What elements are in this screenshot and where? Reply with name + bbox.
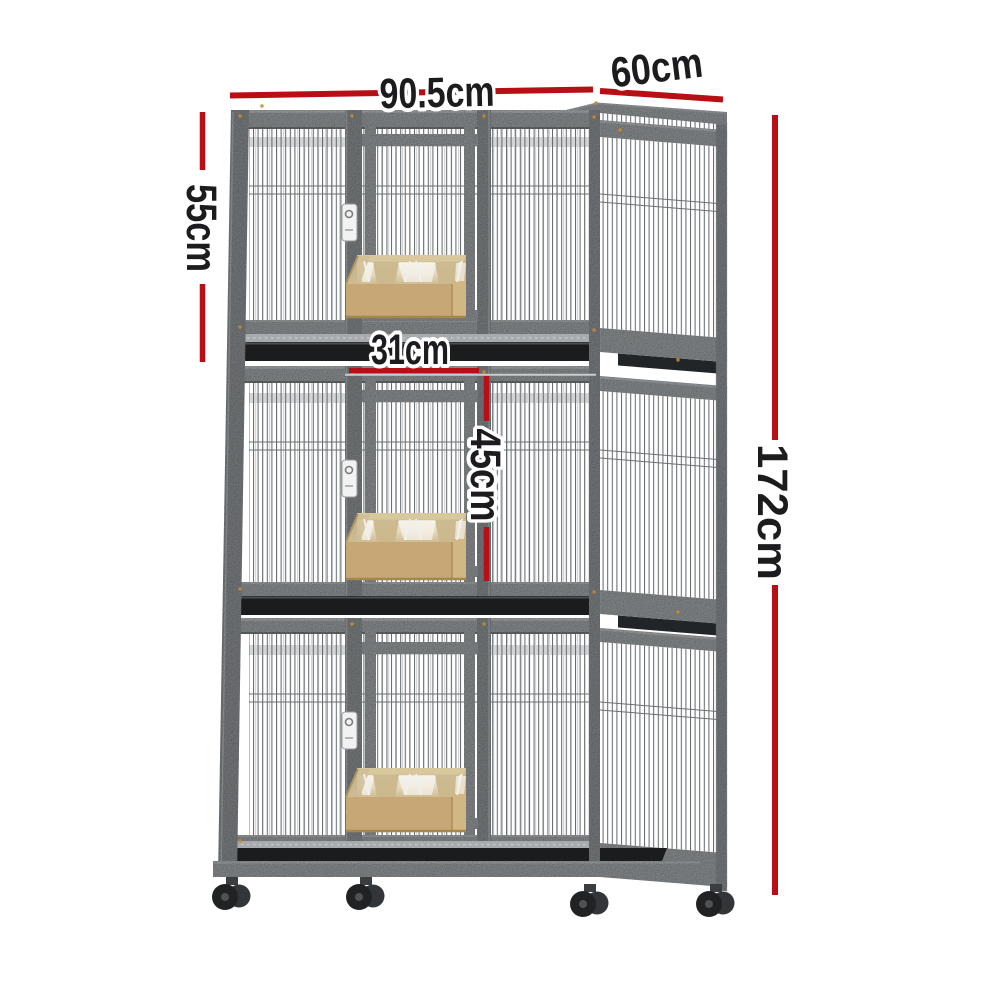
svg-text:60cm: 60cm — [608, 40, 705, 98]
svg-text:55cm: 55cm — [177, 184, 224, 272]
svg-text:90.5cm: 90.5cm — [379, 69, 495, 119]
svg-text:45cm: 45cm — [461, 429, 508, 522]
svg-text:31cm: 31cm — [371, 327, 449, 374]
svg-text:172cm: 172cm — [748, 444, 795, 580]
